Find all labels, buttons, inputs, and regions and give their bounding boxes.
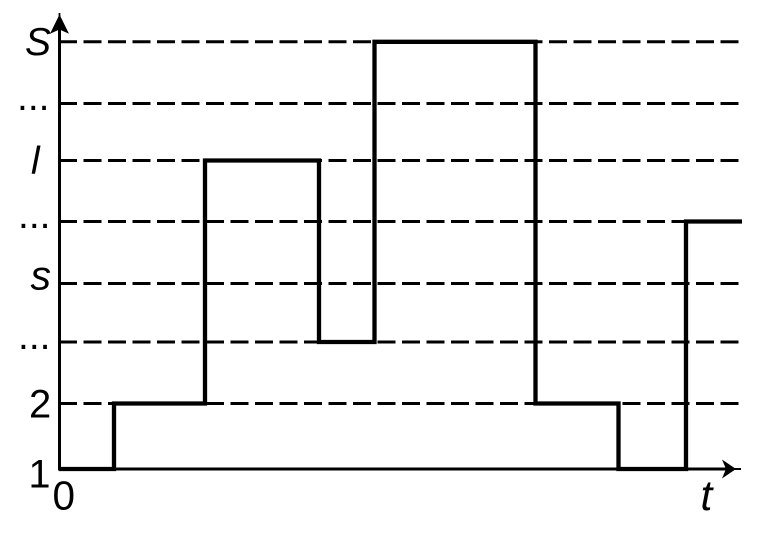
svg-text:...: ... [17, 76, 50, 119]
svg-text:1: 1 [29, 453, 51, 497]
svg-text:S: S [25, 21, 51, 64]
svg-text:t: t [701, 473, 715, 520]
svg-text:s: s [31, 253, 52, 299]
svg-text:...: ... [18, 315, 51, 358]
svg-text:...: ... [18, 194, 51, 237]
svg-text:l: l [31, 140, 41, 183]
svg-text:2: 2 [29, 383, 51, 427]
svg-text:0: 0 [53, 473, 76, 519]
